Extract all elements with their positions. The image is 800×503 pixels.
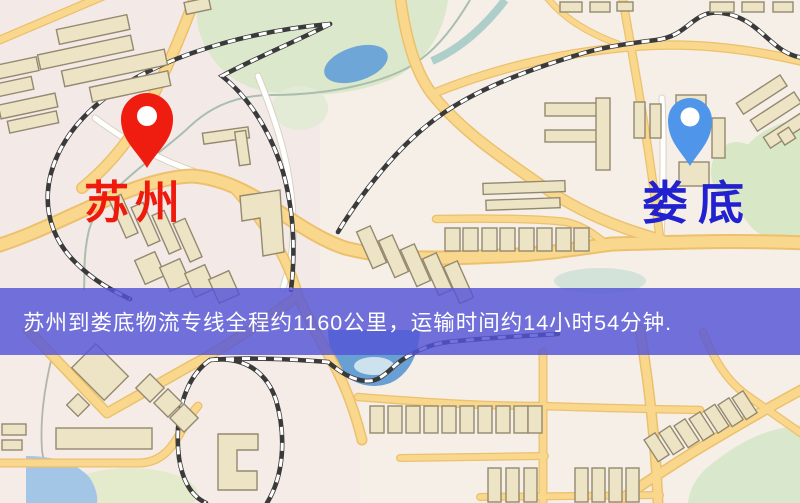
map-background: [0, 0, 800, 503]
route-info-banner: 苏州到娄底物流专线全程约1160公里，运输时间约14小时54分钟.: [0, 288, 800, 355]
map-canvas: 苏州 娄底 苏州到娄底物流专线全程约1160公里，运输时间约14小时54分钟.: [0, 0, 800, 503]
route-info-text: 苏州到娄底物流专线全程约1160公里，运输时间约14小时54分钟.: [0, 306, 672, 337]
destination-pin-icon: [668, 98, 712, 166]
destination-city-label: 娄底: [642, 180, 754, 226]
origin-city-label: 苏州: [84, 180, 186, 225]
